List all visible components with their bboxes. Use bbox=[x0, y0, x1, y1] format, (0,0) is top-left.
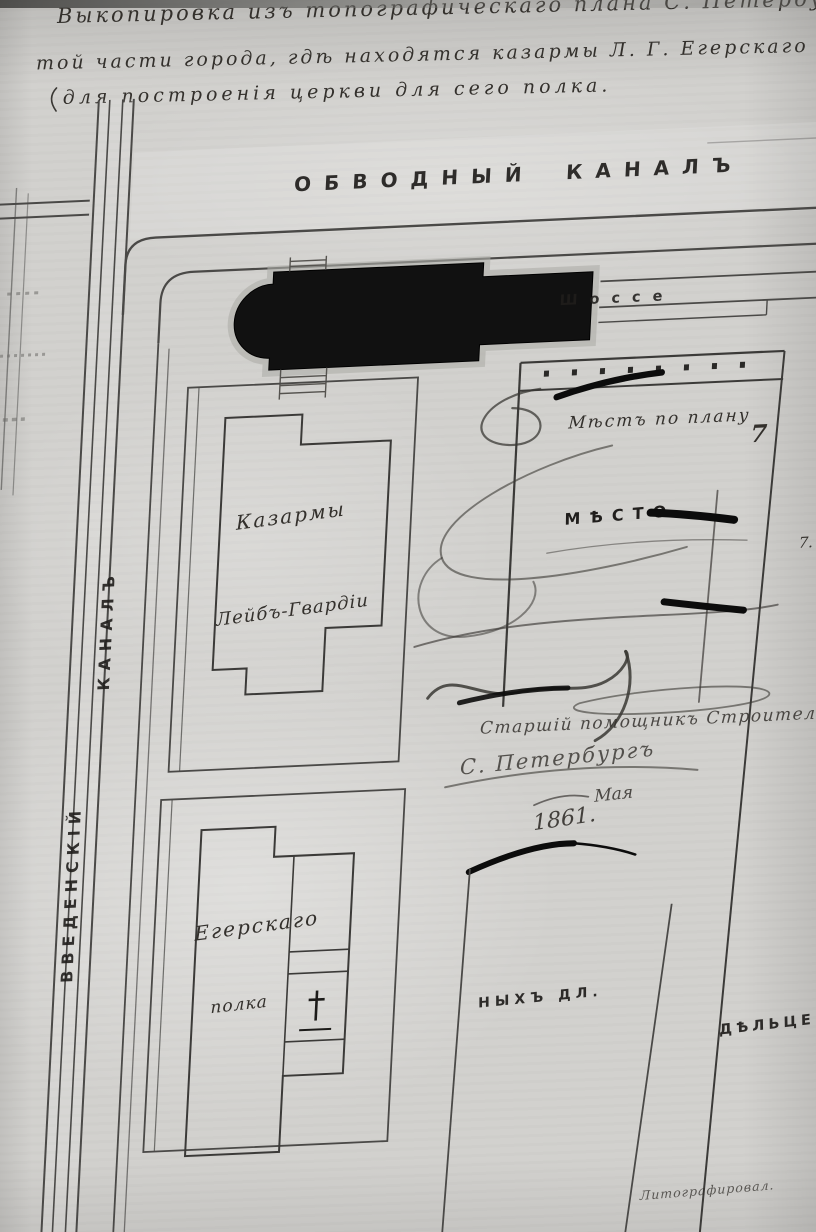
map-drawing: Выкопировка изъ топографическаго плана С… bbox=[0, 0, 816, 1232]
month-inscription: Мая bbox=[593, 783, 633, 807]
vvedensky-water bbox=[39, 99, 134, 1232]
guards-barracks-label-2: Лейбъ-Гвардіи bbox=[215, 590, 370, 631]
right-block-parcel: Мѣстъ по плану 7 МѢСТО 7. bbox=[475, 349, 816, 1232]
header-paren-flourish bbox=[51, 88, 57, 111]
lithography-note: Литографировал. bbox=[639, 1177, 775, 1203]
edge-number: 7. bbox=[798, 533, 813, 552]
jaeger-barracks-label-2: полка bbox=[210, 992, 268, 1018]
header-title-line-2: той части города, гдѣ находятся казармы … bbox=[36, 33, 816, 75]
guards-barracks-outline bbox=[211, 410, 392, 696]
city-inscription: С. Петербургъ bbox=[460, 736, 655, 780]
jaeger-barracks-outline bbox=[185, 823, 356, 1156]
map-header: Выкопировка изъ топографическаго плана С… bbox=[35, 0, 816, 111]
guards-barracks-label-1: Казармы bbox=[234, 497, 346, 535]
stray-stroke bbox=[699, 491, 718, 702]
faint-cursive-line bbox=[547, 537, 747, 553]
map-scan: Выкопировка изъ топографическаго плана С… bbox=[0, 0, 816, 1232]
office-inscriptions: Старшій помощникъ Строительнаго от С. Пе… bbox=[456, 699, 816, 839]
plan-note-label: Мѣстъ по плану bbox=[567, 405, 751, 433]
bottom-parcels: НЫХЪ ДЛ. ДѢЛЬЦЕВЪ bbox=[440, 852, 816, 1232]
guards-barracks-parcel: Казармы Лейбъ-Гвардіи bbox=[169, 377, 418, 771]
jaeger-barracks-label-1: Егерскаго bbox=[193, 905, 319, 945]
margin-fragments bbox=[0, 292, 49, 420]
official-inscription: Старшій помощникъ Строительнаго от bbox=[480, 699, 816, 738]
chapel-cross-icon bbox=[299, 990, 333, 1030]
plan-number: 7 bbox=[750, 419, 768, 449]
header-title-line-3: для построенія церкви для сего полка. bbox=[63, 74, 612, 108]
parcel-fragment-right: ДѢЛЬЦЕВЪ bbox=[719, 1008, 816, 1039]
parcel-fragment-left: НЫХЪ ДЛ. bbox=[478, 984, 603, 1012]
jaeger-barracks-parcel: Егерскаго полка bbox=[143, 789, 405, 1158]
scan-edge-shadow bbox=[0, 0, 816, 8]
year-inscription: 1861. bbox=[532, 802, 596, 836]
church-silhouette bbox=[232, 258, 594, 372]
